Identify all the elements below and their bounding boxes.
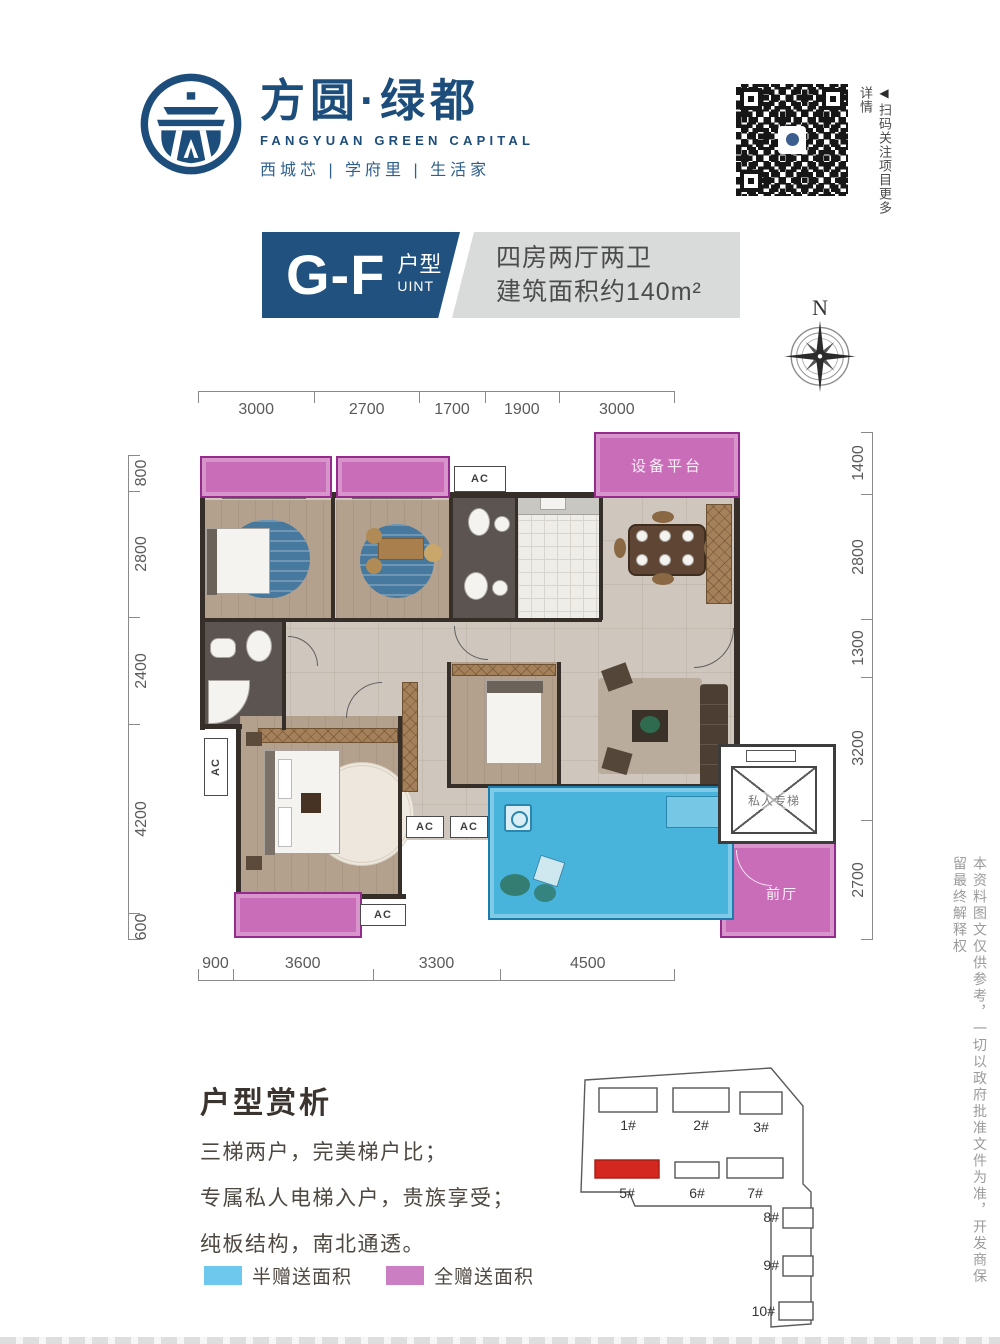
building-5-highlighted	[595, 1160, 659, 1178]
building-label: 10#	[752, 1303, 776, 1319]
gift-balcony-north-2	[336, 456, 450, 498]
door-arc	[736, 850, 772, 886]
disclaimer-text: 本资料图文仅供参考，一切以政府批准文件为准，开发商保留最终解释权	[950, 856, 990, 1296]
dim-value: 1300	[846, 619, 872, 677]
unit-label: 户型 UINT	[397, 252, 441, 297]
chair	[652, 511, 674, 523]
toilet	[468, 508, 490, 536]
ac-platform: AC	[454, 466, 506, 492]
washing-machine-door	[511, 811, 528, 828]
ac-platform: AC	[450, 816, 488, 838]
unit-code: G-F	[286, 247, 385, 303]
building-7	[727, 1158, 783, 1178]
building-label: 6#	[689, 1185, 705, 1201]
dim-value: 3300	[373, 950, 501, 980]
building-label: 9#	[763, 1257, 779, 1273]
legend-label: 半赠送面积	[252, 1262, 352, 1289]
brand-name-en: FANGYUAN GREEN CAPITAL	[260, 133, 534, 148]
dim-value: 900	[198, 950, 233, 980]
unit-title-box: G-F 户型 UINT	[262, 232, 460, 318]
site-plan: 1# 2# 3# 5# 6# 7# 8# 9# 10#	[575, 1058, 895, 1343]
chair	[614, 538, 626, 558]
analysis-line: 纯板结构，南北通透。	[200, 1228, 425, 1258]
dim-value: 800	[129, 455, 155, 491]
dim-value: 3000	[559, 392, 675, 422]
wall	[452, 618, 602, 622]
half-gift-balcony	[488, 786, 734, 920]
private-elevator-label: 私人专梯	[746, 792, 802, 809]
unit-label-cn: 户型	[397, 252, 441, 277]
analysis-line: 三梯两户，完美梯户比；	[200, 1136, 448, 1166]
legend-swatch-blue	[204, 1266, 242, 1285]
brand-name-cn: 方圆·绿都	[260, 76, 534, 126]
dim-value: 4500	[500, 950, 675, 980]
exterior-notch	[402, 840, 488, 940]
desk	[378, 538, 424, 560]
dim-value: 3000	[198, 392, 314, 422]
gift-balcony-north-1	[200, 456, 332, 498]
equipment-platform: 设备平台	[594, 432, 740, 498]
chair	[366, 528, 382, 544]
private-elevator-shaft: 私人专梯	[731, 766, 817, 834]
plate	[659, 554, 671, 566]
ac-platform: AC	[406, 816, 444, 838]
plant	[500, 874, 530, 896]
nightstand	[246, 856, 262, 870]
wall	[449, 492, 453, 620]
elevator-door	[746, 750, 796, 762]
unit-rooms: 四房两厅两卫	[496, 241, 740, 275]
analysis-line: 专属私人电梯入户，贵族享受；	[200, 1182, 515, 1212]
building-9	[783, 1256, 813, 1276]
dim-value: 2800	[846, 494, 872, 619]
ac-platform: AC	[360, 904, 406, 926]
building-1	[599, 1088, 657, 1112]
nightstand	[246, 732, 262, 746]
dim-value: 2800	[129, 491, 155, 617]
toilet	[210, 638, 236, 658]
unit-area: 建筑面积约140m²	[496, 275, 740, 309]
arrow-left-icon: ◀	[877, 86, 891, 101]
brand-logo-emblem	[138, 70, 244, 178]
kitchen-sink	[540, 497, 566, 510]
bed	[206, 528, 270, 594]
dimension-col-left: 800 2800 2400 4200 600	[128, 455, 155, 940]
qr-caption-text: 扫码关注项目更多详情	[858, 86, 892, 215]
unit-description-box: 四房两厅两卫 建筑面积约140m²	[452, 232, 740, 318]
wall	[398, 716, 402, 898]
sink	[494, 516, 510, 532]
bed	[486, 680, 542, 764]
wall	[515, 492, 518, 620]
dim-value: 3600	[233, 950, 373, 980]
wall	[200, 492, 205, 730]
wall	[734, 492, 740, 750]
qr-finder-icon	[822, 88, 844, 110]
wall	[599, 492, 603, 620]
bench	[666, 796, 724, 828]
building-2	[673, 1088, 729, 1112]
dim-value: 1900	[485, 392, 559, 422]
plate	[636, 530, 648, 542]
wall	[204, 618, 454, 622]
building-8	[783, 1208, 813, 1228]
wall	[557, 662, 561, 788]
chair	[533, 855, 566, 888]
wall	[447, 662, 451, 788]
building-label: 8#	[763, 1209, 779, 1225]
wardrobe	[258, 728, 398, 743]
compass-icon: N	[778, 296, 862, 392]
cabinet	[402, 682, 418, 792]
plate	[682, 530, 694, 542]
front-hall: 前厅	[720, 842, 836, 938]
building-6	[675, 1162, 719, 1178]
gift-balcony-south	[234, 892, 362, 938]
chair	[366, 558, 382, 574]
brand-tagline: 西城芯 | 学府里 | 生活家	[260, 156, 534, 180]
building-10	[779, 1302, 813, 1320]
analysis-heading: 户型赏析	[200, 1078, 332, 1122]
legend-item-full-gift: 全赠送面积	[386, 1262, 534, 1289]
sink	[492, 580, 508, 596]
qr-code	[736, 84, 848, 196]
wall	[282, 618, 286, 730]
dim-value: 3200	[846, 677, 872, 820]
wardrobe	[452, 664, 556, 676]
front-hall-label: 前厅	[766, 884, 798, 904]
dim-value: 4200	[129, 724, 155, 913]
dim-value: 600	[129, 913, 155, 940]
dim-value: 2700	[314, 392, 419, 422]
toilet	[464, 572, 488, 600]
cabinet	[706, 504, 732, 604]
plant	[640, 716, 660, 733]
dim-value: 1700	[419, 392, 485, 422]
legend-label: 全赠送面积	[434, 1262, 534, 1289]
building-label: 2#	[693, 1117, 709, 1133]
plant	[534, 884, 556, 902]
wall	[331, 498, 335, 620]
dimension-row-top: 3000 2700 1700 1900 3000	[198, 391, 675, 422]
dimension-row-bottom: 900 3600 3300 4500	[198, 950, 675, 981]
qr-finder-icon	[740, 88, 762, 110]
plate	[636, 554, 648, 566]
unit-label-en: UINT	[397, 278, 441, 294]
dimension-col-right: 1400 2800 1300 3200 2700	[846, 432, 873, 940]
floor-plan: 设备平台 前厅 私人专梯 AC AC AC AC AC	[200, 432, 840, 940]
master-bed	[264, 750, 340, 854]
dim-value: 1400	[846, 432, 872, 494]
building-label: 7#	[747, 1185, 763, 1201]
qr-finder-icon	[740, 170, 762, 192]
legend-swatch-pink	[386, 1266, 424, 1285]
brand-text-block: 方圆·绿都 FANGYUAN GREEN CAPITAL 西城芯 | 学府里 |…	[260, 76, 534, 180]
building-label: 1#	[620, 1117, 636, 1133]
chair	[424, 544, 442, 562]
building-label: 3#	[753, 1119, 769, 1135]
wall	[236, 724, 241, 900]
ac-platform: AC	[204, 738, 228, 796]
qr-caption: ◀扫码关注项目更多详情	[856, 86, 894, 216]
dim-value: 2400	[129, 617, 155, 725]
dim-value: 2700	[846, 820, 872, 940]
building-3	[740, 1092, 782, 1114]
building-label: 5#	[619, 1185, 635, 1201]
plate	[659, 530, 671, 542]
footer-decoration-strip	[0, 1337, 1000, 1344]
sink	[246, 630, 272, 662]
equipment-platform-label: 设备平台	[631, 455, 703, 476]
legend-item-half-gift: 半赠送面积	[204, 1262, 352, 1289]
chair	[652, 573, 674, 585]
plate	[682, 554, 694, 566]
qr-center-logo	[778, 126, 806, 154]
compass-n-label: N	[812, 296, 828, 320]
